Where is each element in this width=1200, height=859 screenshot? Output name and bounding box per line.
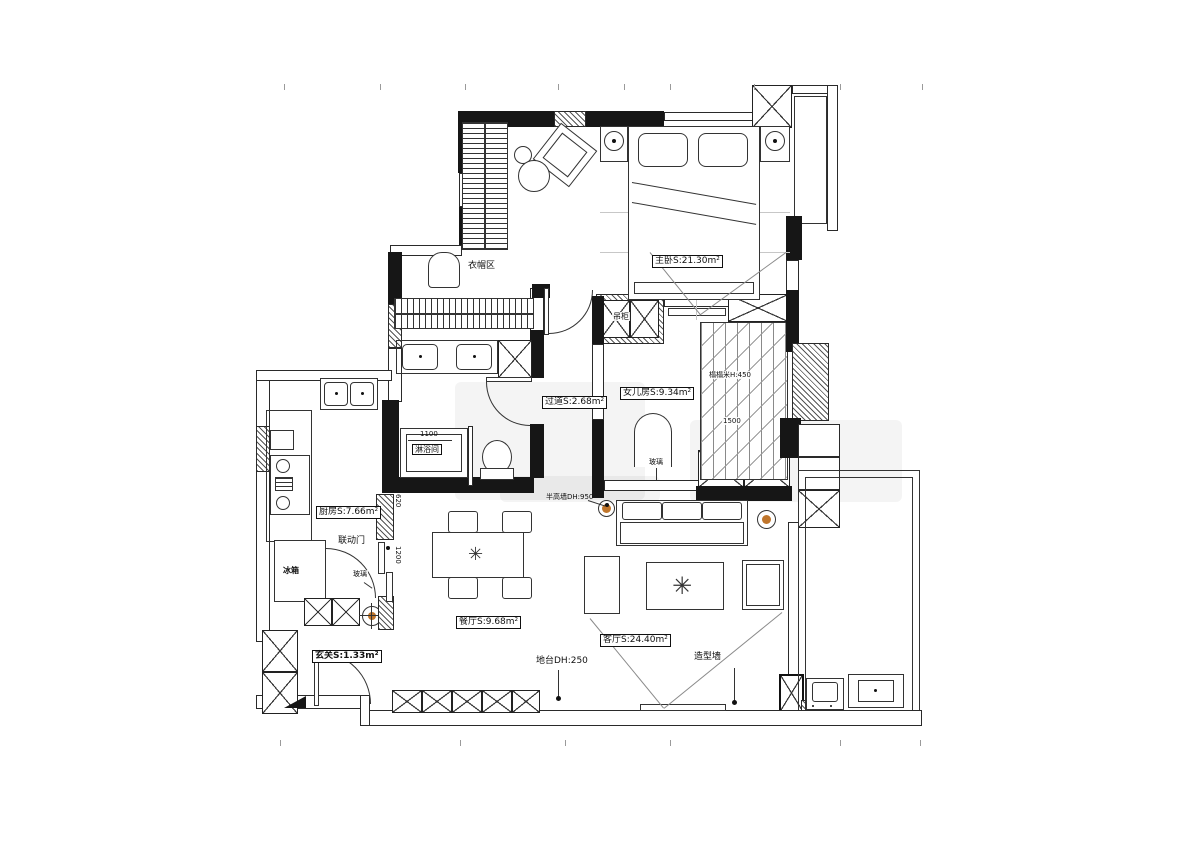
master-label: 主卧S:21.30m² xyxy=(652,255,723,268)
leader-dot xyxy=(556,696,561,701)
pivot-cross xyxy=(371,603,372,629)
tick xyxy=(754,84,755,90)
floor-cabinet xyxy=(482,690,512,713)
dim-1100: 1100 xyxy=(420,430,438,438)
tick xyxy=(558,84,559,90)
toilet-tank xyxy=(480,468,514,480)
dim-1200: 1200 xyxy=(394,546,402,564)
plant-icon: ✳ xyxy=(672,572,692,600)
wall xyxy=(530,330,544,378)
faucet xyxy=(361,392,364,395)
hanger-rod xyxy=(484,122,486,250)
sliding-door-leaf xyxy=(386,572,393,602)
floor-cabinet xyxy=(512,690,540,713)
glass-partition xyxy=(604,480,700,491)
linked-door-label: 联动门 xyxy=(338,536,365,547)
dimension-line xyxy=(408,440,452,441)
bath-cabinet xyxy=(498,340,532,378)
faucet xyxy=(335,392,338,395)
tick xyxy=(280,740,281,746)
door-swing xyxy=(326,548,376,598)
hanging-cabinet xyxy=(630,300,659,338)
grill xyxy=(275,477,293,491)
wall xyxy=(388,252,402,304)
entry-label: 玄关S:1.33m² xyxy=(312,650,382,663)
faucet xyxy=(473,355,476,358)
cabinet xyxy=(752,85,792,128)
leader xyxy=(558,670,559,698)
cloakroom-label: 衣帽区 xyxy=(468,261,495,272)
washer-knob xyxy=(812,705,814,707)
floor-cabinet xyxy=(452,690,482,713)
window xyxy=(792,343,829,421)
armchair-seat xyxy=(746,564,780,606)
tick xyxy=(920,740,921,746)
shower-label: 淋浴间 xyxy=(412,444,442,455)
wall xyxy=(592,296,604,344)
feature-wall-label: 造型墙 xyxy=(694,652,721,663)
glass-kitchen-label: 玻璃 xyxy=(352,570,368,578)
dining-label: 餐厅S:9.68m² xyxy=(456,616,521,629)
wall-corner xyxy=(284,696,306,708)
lamp-center xyxy=(773,139,777,143)
tick xyxy=(840,740,841,746)
corridor-label: 过道S:2.68m² xyxy=(542,396,607,409)
pivot-dot xyxy=(386,546,390,550)
leader-dot xyxy=(732,700,737,705)
lamp-center xyxy=(612,139,616,143)
sofa-cushion xyxy=(702,502,742,520)
tick xyxy=(670,740,671,746)
dim-1500: 1500 xyxy=(722,417,742,425)
partition xyxy=(468,426,473,486)
sight-line xyxy=(590,618,664,708)
kitchen-label: 厨房S:7.66m² xyxy=(316,506,381,519)
leader xyxy=(734,668,735,702)
leader-dot xyxy=(605,503,609,507)
kids-room-label: 女儿房S:9.34m² xyxy=(620,387,694,400)
door-swing xyxy=(549,290,593,334)
pillow xyxy=(638,133,688,167)
sight-line xyxy=(664,612,783,709)
bay-window xyxy=(794,96,827,224)
fridge-label: 冰箱 xyxy=(282,566,300,575)
burner xyxy=(276,459,290,473)
side-cabinet xyxy=(584,556,620,614)
shoe-cabinet xyxy=(332,598,360,626)
half-wall-label: 半高墙DH:950 xyxy=(546,493,593,501)
leader xyxy=(656,468,657,480)
tick xyxy=(565,740,566,746)
basin-cloak xyxy=(428,252,460,288)
wall xyxy=(592,420,604,498)
tick xyxy=(670,84,671,90)
shoe-cabinet xyxy=(304,598,332,626)
tick xyxy=(922,84,923,90)
dining-chair xyxy=(448,577,478,599)
wall xyxy=(696,486,792,501)
glass-kids-label: 玻璃 xyxy=(648,458,664,466)
wall xyxy=(786,260,799,292)
washing-machine-drum xyxy=(812,682,838,702)
plant-icon: ✳ xyxy=(468,544,483,565)
faucet xyxy=(874,689,877,692)
living-label: 客厅S:24.40m² xyxy=(600,634,671,647)
wall-lamp-core xyxy=(762,515,771,524)
sofa-cushion xyxy=(662,502,702,520)
sofa-cushion xyxy=(622,502,662,520)
dim-620: 620 xyxy=(394,494,402,507)
floor-cabinet xyxy=(422,690,452,713)
tick xyxy=(465,84,466,90)
tick xyxy=(840,84,841,90)
dining-chair xyxy=(502,577,532,599)
entry-cabinet xyxy=(262,630,298,672)
hob xyxy=(270,430,294,450)
hanging-cabinet-label: 吊柜 xyxy=(612,312,630,321)
tick xyxy=(284,84,285,90)
wall xyxy=(786,216,802,260)
wall xyxy=(530,424,544,478)
wall xyxy=(664,112,754,121)
tatami-label: 榻榻米H:450 xyxy=(708,371,752,379)
tv xyxy=(640,704,726,711)
sliding-door-leaf xyxy=(378,542,385,574)
dining-chair xyxy=(448,511,478,533)
tatami-hatch xyxy=(701,323,787,479)
tatami-platform xyxy=(700,322,788,480)
burner xyxy=(276,496,290,510)
sofa-seat xyxy=(620,522,744,544)
tick xyxy=(624,84,625,90)
tick xyxy=(380,84,381,90)
bay-window xyxy=(827,85,838,231)
faucet xyxy=(419,355,422,358)
pillow xyxy=(698,133,748,167)
wall xyxy=(586,111,664,127)
platform-label: 地台DH:250 xyxy=(536,656,588,667)
washer-knob xyxy=(830,705,832,707)
floor-cabinet xyxy=(392,690,422,713)
side-table xyxy=(518,160,550,192)
dining-chair xyxy=(502,511,532,533)
hanger-rod xyxy=(394,313,534,315)
tick xyxy=(460,740,461,746)
door-pivot-core xyxy=(368,612,376,620)
floor-plan: 吊柜 衣柜 冰箱 xyxy=(0,0,1200,859)
cabinet xyxy=(798,424,840,457)
